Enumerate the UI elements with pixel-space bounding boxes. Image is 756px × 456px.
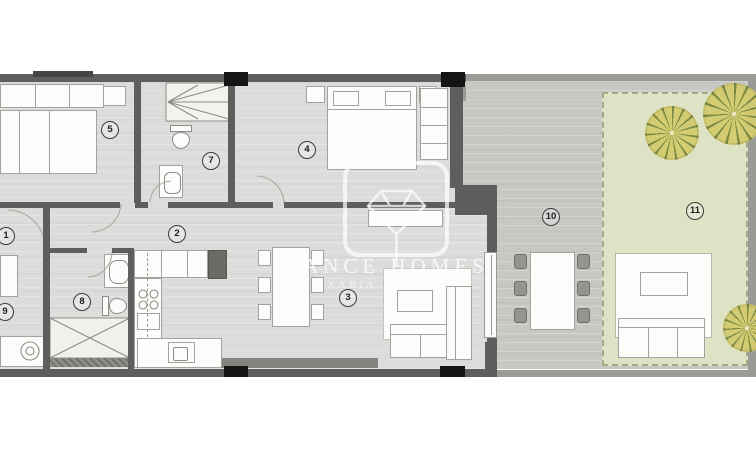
wall-hallway-north	[0, 202, 120, 208]
room-badge-7: 7	[202, 152, 220, 170]
room-badge-5: 5	[101, 121, 119, 139]
wall-bottom-terrace	[497, 370, 756, 377]
fixture-linework	[0, 0, 756, 456]
wall-top-terrace	[466, 74, 756, 81]
wall-bath8-kitchen	[128, 253, 134, 369]
wall-living-east	[487, 215, 497, 255]
room-badge-10: 10	[542, 208, 560, 226]
wall-hallway-north	[135, 202, 148, 208]
wall-room1-east	[43, 203, 50, 369]
room-badge-4: 4	[298, 141, 316, 159]
tree	[645, 106, 699, 160]
room-badge-11: 11	[686, 202, 704, 220]
wall-hallway-north	[284, 202, 455, 208]
room-badge-2: 2	[168, 225, 186, 243]
pillar	[441, 72, 465, 87]
sliding-door	[484, 252, 497, 338]
pillar	[224, 72, 248, 86]
tree	[703, 83, 756, 145]
wall-bedroom5-bath7	[134, 81, 141, 203]
pillar	[440, 366, 465, 377]
wall-bottom	[0, 369, 497, 377]
floor-plan: 1 2 3 4 5 7 8 9 10 11 ANCE HOMES XABIA	[0, 0, 756, 456]
wall-bath8-north	[50, 248, 87, 253]
wall-jog-bottom	[485, 342, 497, 377]
room-badge-3: 3	[339, 289, 357, 307]
wall-bedroom4-east	[450, 81, 463, 188]
pillar	[224, 366, 248, 377]
window	[33, 71, 93, 77]
room-badge-8: 8	[73, 293, 91, 311]
wall-hallway-north	[168, 202, 273, 208]
wall-bath7-bedroom4	[228, 81, 235, 208]
wall-jog-terrace	[455, 185, 497, 215]
